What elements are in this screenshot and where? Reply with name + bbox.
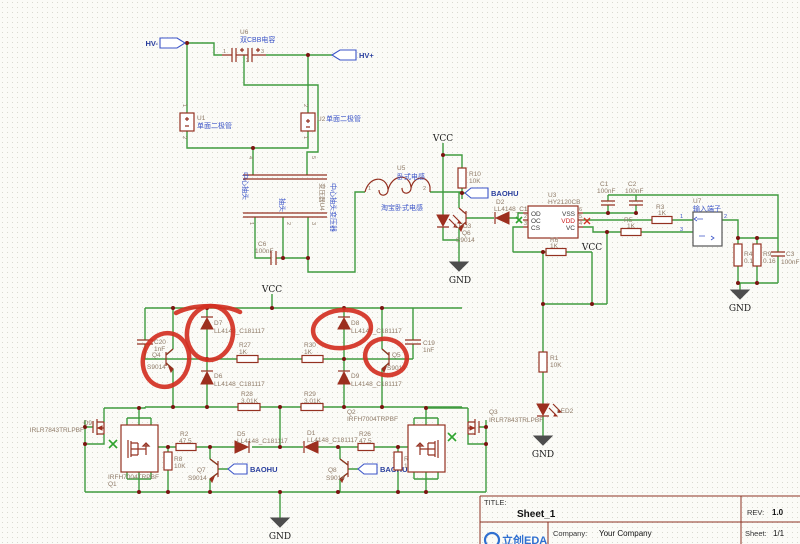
u3-pin-vdd: VDD <box>561 218 575 225</box>
gnd-label-led2[interactable]: GND <box>532 450 554 460</box>
vcc-flag-bridge[interactable]: VCC <box>261 285 282 295</box>
component-r26[interactable]: R26 47.5 <box>358 431 374 451</box>
r2-value[interactable]: 47.5 <box>179 438 192 445</box>
c1-ref[interactable]: C1 <box>600 181 609 188</box>
u4-tap-label[interactable]: 抽头 <box>278 198 287 212</box>
d7-value[interactable]: LL4148_C181117 <box>214 328 265 335</box>
u4-name-ref[interactable]: 变压器U4 <box>318 183 327 211</box>
component-q9[interactable]: Q9 IRLR7843TRLPBF <box>30 419 104 435</box>
r9-value[interactable]: 0.16 <box>763 258 776 265</box>
u5-name[interactable]: 卧式电感 <box>397 172 425 181</box>
port-hv-minus[interactable]: HV- <box>145 38 185 48</box>
c19-ref[interactable]: C19 <box>423 340 435 347</box>
u3-num-6: 6 <box>579 207 582 213</box>
c6-ref[interactable]: C6 <box>258 241 267 248</box>
r1-value[interactable]: 10K <box>550 362 562 369</box>
u2-pin1: 1 <box>302 136 308 139</box>
component-r27[interactable]: R27 1K <box>237 342 258 363</box>
r28-ref[interactable]: R28 <box>241 391 253 398</box>
u3-num-2: 2 <box>524 214 527 220</box>
gnd-symbol-right <box>731 290 749 299</box>
led3-symbol[interactable] <box>437 215 449 226</box>
r4-symbol[interactable] <box>734 244 742 266</box>
component-c2[interactable]: C2 100nF <box>625 181 643 205</box>
q7-symbol[interactable] <box>210 459 218 479</box>
component-r2[interactable]: R2 47.5 <box>176 431 196 451</box>
vcc-flag-top[interactable]: VCC <box>432 134 453 144</box>
d7-ref[interactable]: D7 <box>214 320 223 327</box>
gnd-label-opto[interactable]: GND <box>449 276 471 286</box>
port-label-hv-minus[interactable]: HV- <box>145 39 158 48</box>
lceda-logo-text: 立创EDA <box>502 533 547 544</box>
q3-value[interactable]: IRLR7843TRLPBF <box>489 417 543 424</box>
r29-ref[interactable]: R29 <box>304 391 316 398</box>
component-r10[interactable]: R10 10K <box>458 168 481 188</box>
q5-ref[interactable]: Q5 <box>392 352 401 359</box>
d2-ref[interactable]: D2 <box>496 199 505 206</box>
u3-pin-cs: CS <box>531 225 541 232</box>
c1-symbol[interactable] <box>601 201 615 205</box>
led2-ref[interactable]: LED2 <box>557 408 574 415</box>
gnd-flag-led2[interactable]: GND <box>532 436 554 460</box>
sheet-value[interactable]: 1/1 <box>773 529 785 538</box>
port-shape-hv-minus[interactable] <box>160 38 185 48</box>
d2-symbol[interactable] <box>496 212 509 224</box>
company-value[interactable]: Your Company <box>599 529 652 538</box>
d5-ref[interactable]: D5 <box>237 431 246 438</box>
q8-ref[interactable]: Q8 <box>328 467 337 474</box>
q8-value[interactable]: S9014 <box>326 475 345 482</box>
r4-ref[interactable]: R4 <box>744 251 753 258</box>
r26-ref[interactable]: R26 <box>359 431 371 438</box>
q7-ref[interactable]: Q7 <box>197 467 206 474</box>
r26-value[interactable]: 47.5 <box>359 438 372 445</box>
r1-ref[interactable]: R1 <box>550 355 559 362</box>
c2-value[interactable]: 100nF <box>625 188 643 195</box>
title-label: TITLE: <box>484 498 507 507</box>
component-q8[interactable]: Q8 S9014 <box>326 459 348 482</box>
u6-pin2: 2 <box>246 58 249 64</box>
erc-x-q2 <box>448 433 456 441</box>
r28-value[interactable]: 3.01K <box>241 398 259 405</box>
lceda-logo-icon <box>485 533 499 544</box>
component-led2[interactable]: LED2 <box>537 404 574 416</box>
q1-value[interactable]: IRFH7004TRPBF <box>108 474 159 481</box>
vcc-label-top[interactable]: VCC <box>432 134 453 144</box>
q7-value[interactable]: S9014 <box>188 475 207 482</box>
u3-part[interactable]: HY2120CB <box>548 199 581 206</box>
u6-value[interactable]: 双CBB电容 <box>240 35 275 44</box>
component-d6[interactable]: D6 LL4148_C181117 <box>201 371 265 388</box>
u4-center-tap-label[interactable]: 中心抽头 <box>241 172 250 200</box>
led2-symbol[interactable] <box>537 404 549 415</box>
r8-symbol[interactable] <box>164 452 172 470</box>
u3-pin-od: OD <box>531 211 541 218</box>
c3-ref[interactable]: C3 <box>786 251 795 258</box>
port-baohu-1[interactable]: BAOHU <box>465 188 519 198</box>
u4-pin1: 1 <box>248 222 254 225</box>
component-c6[interactable]: C6 100nF <box>255 241 276 265</box>
u1-pin2: 2 <box>181 136 187 139</box>
schematic-sheet[interactable]: HV- HV+ BAOHU BAOHU BAOHU VCC VCC VCC GN… <box>0 0 800 544</box>
port-label-baohu-1[interactable]: BAOHU <box>491 189 519 198</box>
u1-value[interactable]: 单面二极管 <box>197 121 232 130</box>
r27-ref[interactable]: R27 <box>239 342 251 349</box>
u3-num-4: 4 <box>579 221 582 227</box>
gnd-symbol-opto <box>450 262 468 271</box>
vcc-label-bridge[interactable]: VCC <box>261 285 282 295</box>
red-annotation-q5 <box>361 334 410 379</box>
erc-error-icon-vdd <box>584 218 590 224</box>
d8-value[interactable]: LL4148_C181117 <box>351 328 402 335</box>
r29-value[interactable]: 3.01K <box>304 398 322 405</box>
u2-value[interactable]: 单面二极管 <box>326 114 361 123</box>
d5-value[interactable]: LL4148_C181117 <box>237 438 288 445</box>
component-q4[interactable]: Q4 S9014 <box>147 349 173 372</box>
port-label-hv-plus[interactable]: HV+ <box>359 51 374 60</box>
component-q3[interactable]: Q3 IRLR7843TRLPBF <box>468 409 543 435</box>
c2-symbol[interactable] <box>629 201 643 205</box>
u1-ref[interactable]: U1 <box>197 115 206 122</box>
red-annotations <box>138 303 411 391</box>
u2-pin2: 2 <box>302 104 308 107</box>
component-u7[interactable]: U7 输入端子 1 2 3 <box>680 198 727 246</box>
u7-value[interactable]: 输入端子 <box>693 204 721 213</box>
r30-value[interactable]: 1K <box>304 349 313 356</box>
r6-value[interactable]: 1K <box>550 243 559 250</box>
q1-ref[interactable]: Q1 <box>108 481 117 488</box>
r5-value[interactable]: 1K <box>627 223 636 230</box>
schematic-canvas[interactable]: HV- HV+ BAOHU BAOHU BAOHU VCC VCC VCC GN… <box>0 0 800 544</box>
r3-value[interactable]: 1K <box>658 210 667 217</box>
r9-symbol[interactable] <box>753 244 761 266</box>
u3-num-5: 5 <box>579 214 582 220</box>
r10-value[interactable]: 10K <box>469 178 481 185</box>
component-u1[interactable]: U1 单面二极管 1 2 <box>180 104 232 139</box>
component-u3[interactable]: U3 HY2120CB OD OC CS VSS VDD VC 1 2 3 6 … <box>516 192 590 238</box>
u2-ref[interactable]: U2 <box>317 116 326 123</box>
d6-value[interactable]: LL4148_C181117 <box>214 381 265 388</box>
r7-symbol[interactable] <box>394 452 402 470</box>
r8-value[interactable]: 10K <box>174 463 186 470</box>
sheet-title[interactable]: Sheet_1 <box>517 509 556 520</box>
d6-ref[interactable]: D6 <box>214 373 223 380</box>
u4-pin3: 3 <box>310 222 316 225</box>
vcc-label-right[interactable]: VCC <box>581 243 602 253</box>
c6-value[interactable]: 100nF <box>255 248 273 255</box>
u3-num-1: 1 <box>524 207 527 213</box>
r27-value[interactable]: 1K <box>239 349 248 356</box>
r30-ref[interactable]: R30 <box>304 342 316 349</box>
u3-pin-vc: VC <box>566 225 575 232</box>
q2-value[interactable]: IRFH7004TRPBF <box>347 416 398 423</box>
u4-pin4: 4 <box>247 156 253 159</box>
erc-x-q1 <box>109 440 117 448</box>
u6-pin1: 1 <box>223 49 226 55</box>
port-hv-plus[interactable]: HV+ <box>332 50 374 60</box>
c3-value[interactable]: 100nF <box>781 259 799 266</box>
gnd-flag-bottom[interactable]: GND <box>269 518 291 542</box>
u1-pin1: 1 <box>181 104 187 107</box>
r9-ref[interactable]: R9 <box>763 251 772 258</box>
q2-ref[interactable]: Q2 <box>347 409 356 416</box>
component-r29[interactable]: R29 3.01K <box>301 391 323 411</box>
r3-symbol[interactable] <box>652 217 672 224</box>
q6-ref[interactable]: Q6 <box>462 230 471 237</box>
c3-symbol[interactable] <box>771 252 785 256</box>
gnd-label-bottom[interactable]: GND <box>269 532 291 542</box>
u4-value[interactable]: 中心抽头变压器 <box>329 183 338 232</box>
r8-ref[interactable]: R8 <box>174 456 183 463</box>
r2-ref[interactable]: R2 <box>180 431 189 438</box>
gnd-symbol-bottom <box>271 518 289 527</box>
q3-ref[interactable]: Q3 <box>489 409 498 416</box>
component-r8[interactable]: R8 10K <box>164 452 186 470</box>
r10-symbol[interactable] <box>458 168 466 188</box>
d8-ref[interactable]: D8 <box>351 320 360 327</box>
u5-pin1: 1 <box>368 186 371 192</box>
port-label-baohu-2[interactable]: BAOHU <box>250 465 278 474</box>
d1-value[interactable]: LL4148_C181117 <box>307 437 358 444</box>
component-r3[interactable]: R3 1K <box>652 204 672 224</box>
port-shape-baohu-3[interactable] <box>358 464 377 474</box>
port-baohu-2[interactable]: BAOHU <box>228 464 278 474</box>
u3-pin-vss: VSS <box>562 211 576 218</box>
port-shape-baohu-2[interactable] <box>228 464 247 474</box>
u7-pin3: 3 <box>680 227 683 233</box>
u4-pin2: 2 <box>285 222 291 225</box>
u7-ref[interactable]: U7 <box>693 198 702 205</box>
gnd-symbol-led2 <box>534 436 552 445</box>
port-shape-baohu-1[interactable] <box>465 188 488 198</box>
r10-ref[interactable]: R10 <box>469 171 481 178</box>
q9-ref[interactable]: Q9 <box>83 420 92 427</box>
q6-value[interactable]: S9014 <box>456 237 475 244</box>
sheet-label: Sheet: <box>745 529 767 538</box>
company-label: Company: <box>553 529 587 538</box>
d9-value[interactable]: LL4148_C181117 <box>351 381 402 388</box>
r1-symbol[interactable] <box>539 352 547 372</box>
r27-symbol[interactable] <box>237 356 258 363</box>
u4-pin5: 5 <box>310 156 316 159</box>
rev-value[interactable]: 1.0 <box>772 508 784 517</box>
u6-ref[interactable]: U6 <box>240 29 249 36</box>
u5-ref[interactable]: U5 <box>397 165 406 172</box>
port-shape-hv-plus[interactable] <box>332 50 356 60</box>
u7-pin1: 1 <box>680 214 683 220</box>
u1-symbol[interactable] <box>180 113 194 131</box>
gnd-flag-right[interactable]: GND <box>729 290 751 314</box>
u3-ref[interactable]: U3 <box>548 192 557 199</box>
component-u6[interactable]: U6 双CBB电容 1 2 3 <box>222 29 275 64</box>
component-q1[interactable]: IRFH7004TRPBF Q1 <box>108 425 159 488</box>
c19-value[interactable]: 1nF <box>423 347 434 354</box>
component-r9[interactable]: R9 0.16 <box>753 244 776 266</box>
component-r1[interactable]: R1 10K <box>539 352 562 372</box>
rev-label: REV: <box>747 508 764 517</box>
no-connect-icon-oc <box>516 217 522 223</box>
u6-pin3: 3 <box>261 49 264 55</box>
component-u2[interactable]: U2 单面二极管 2 1 <box>301 104 361 139</box>
q4-ref[interactable]: Q4 <box>152 352 161 359</box>
c20-ref[interactable]: C20 <box>154 339 166 346</box>
component-r6[interactable]: R6 1K <box>546 237 566 256</box>
u5-value[interactable]: 淘宝卧式电感 <box>381 203 423 212</box>
u7-symbol[interactable] <box>693 212 722 246</box>
component-c19[interactable]: C19 1nF <box>405 340 435 354</box>
vcc-flag-right[interactable]: VCC <box>581 243 602 253</box>
lceda-logo: 立创EDA <box>485 533 547 544</box>
u3-pin-oc: OC <box>531 218 541 225</box>
q9-value[interactable]: IRLR7843TRLPBF <box>30 427 84 434</box>
d1-ref[interactable]: D1 <box>307 430 316 437</box>
u5-pin2: 2 <box>423 186 426 192</box>
title-block: TITLE: Sheet_1 REV: 1.0 Company: Your Co… <box>480 496 800 544</box>
gnd-flag-opto[interactable]: GND <box>449 262 471 286</box>
u3-num-3: 3 <box>524 221 527 227</box>
u7-pin2: 2 <box>724 214 727 220</box>
component-c1[interactable]: C1 100nF <box>597 181 615 205</box>
component-u5-inductor[interactable]: U5 卧式电感 淘宝卧式电感 1 2 <box>365 165 430 212</box>
c2-ref[interactable]: C2 <box>628 181 637 188</box>
component-d1[interactable]: D1 LL4148_C181117 <box>304 430 358 453</box>
d9-ref[interactable]: D9 <box>351 373 360 380</box>
c19-symbol[interactable] <box>405 340 421 344</box>
gnd-label-right[interactable]: GND <box>729 304 751 314</box>
r30-symbol[interactable] <box>302 356 323 363</box>
q4-value[interactable]: S9014 <box>147 364 166 371</box>
c1-value[interactable]: 100nF <box>597 188 615 195</box>
component-r28[interactable]: R28 3.01K <box>238 391 260 411</box>
